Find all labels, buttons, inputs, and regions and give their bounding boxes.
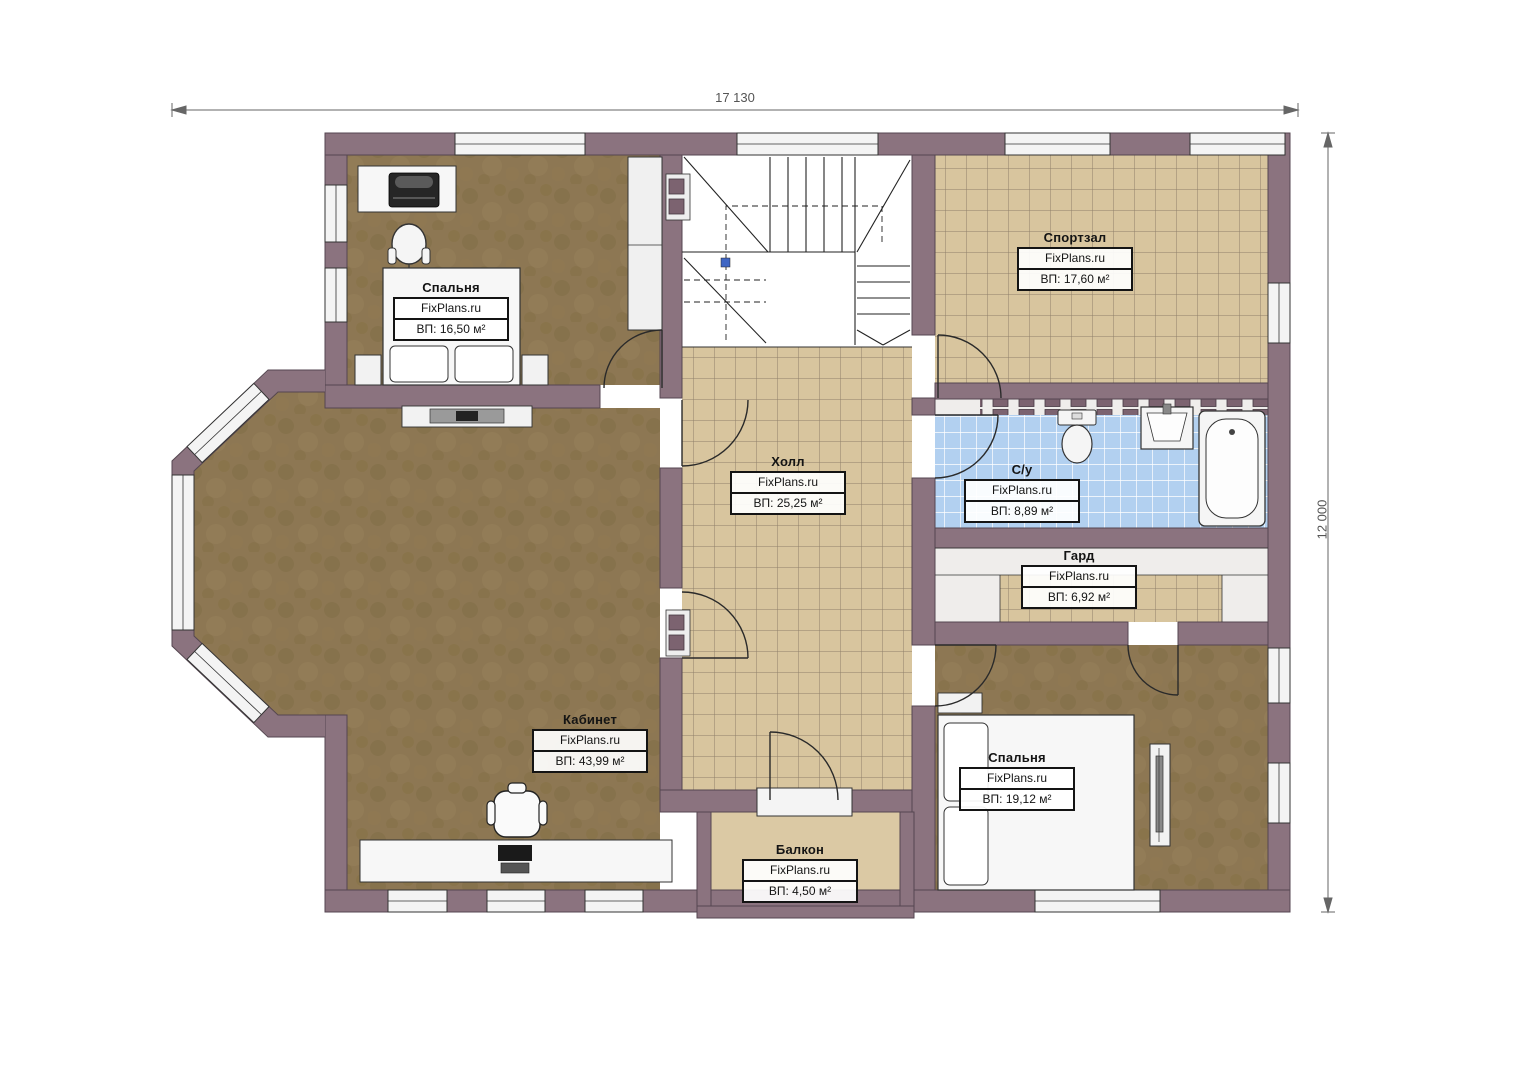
room-label-bedroom-2: Спальня FixPlans.ru ВП: 19,12 м² [959,750,1075,811]
room-info-box: FixPlans.ru ВП: 17,60 м² [1017,247,1133,291]
room-label-office: Кабинет FixPlans.ru ВП: 43,99 м² [532,712,648,773]
toilet-icon [1062,425,1092,463]
watermark-text: FixPlans.ru [961,769,1073,788]
room-title: Кабинет [532,712,648,727]
pillow [944,807,988,885]
room-info-box: FixPlans.ru ВП: 6,92 м² [1021,565,1137,609]
keyboard-icon [501,863,529,873]
room-label-bathroom: С/у FixPlans.ru ВП: 8,89 м² [964,462,1080,523]
wall-bathroom-wardrobe [935,528,1268,548]
nightstand [355,355,381,385]
wall-hall-left-2 [660,468,682,588]
room-label-gym: Спортзал FixPlans.ru ВП: 17,60 м² [1017,230,1133,291]
watermark-text: FixPlans.ru [395,299,507,318]
dimension-height-label: 12 000 [1315,480,1330,560]
room-title: Спортзал [1017,230,1133,245]
floor-plan-page: Спальня FixPlans.ru ВП: 16,50 м² Спортза… [0,0,1528,1080]
room-info-box: FixPlans.ru ВП: 43,99 м² [532,729,648,773]
hall-floor [682,347,912,790]
room-title: Гард [1021,548,1137,563]
wardrobe-shelf-right [1222,575,1268,622]
balcony-wall-left [697,812,711,918]
office-chair-icon [392,224,426,264]
nightstand [522,355,548,385]
wall-gym-bathroom [935,383,1268,399]
stairwell-floor [682,155,912,347]
wall-hall-right-3 [912,478,935,645]
room-info-box: FixPlans.ru ВП: 19,12 м² [959,767,1075,811]
wall-left-lower [325,715,347,890]
dimension-width-label: 17 130 [695,90,775,105]
wall-hall-right-2 [912,398,935,415]
room-label-balcony: Балкон FixPlans.ru ВП: 4,50 м² [742,842,858,903]
wall-wardrobe-bedroom2-1 [935,622,1128,645]
wall-hall-left-3 [660,658,682,790]
room-title: Спальня [959,750,1075,765]
room-title: Балкон [742,842,858,857]
pillow [455,346,513,382]
room-area: ВП: 8,89 м² [966,500,1078,521]
wall-wardrobe-bedroom2-2 [1178,622,1268,645]
wall-hall-right-1 [912,155,935,335]
room-area: ВП: 19,12 м² [961,788,1073,809]
room-title: Холл [730,454,846,469]
watermark-text: FixPlans.ru [744,861,856,880]
closet-bedroom1 [628,157,662,330]
watermark-text: FixPlans.ru [534,731,646,750]
watermark-text: FixPlans.ru [732,473,844,492]
watermark-text: FixPlans.ru [1019,249,1131,268]
room-label-bedroom-1: Спальня FixPlans.ru ВП: 16,50 м² [393,280,509,341]
room-area: ВП: 16,50 м² [395,318,507,339]
armchair-icon [494,791,540,837]
nightstand [938,693,982,713]
pillow [390,346,448,382]
watermark-text: FixPlans.ru [966,481,1078,500]
room-info-box: FixPlans.ru ВП: 4,50 м² [742,859,858,903]
room-area: ВП: 17,60 м² [1019,268,1131,289]
room-label-hall: Холл FixPlans.ru ВП: 25,25 м² [730,454,846,515]
balcony-wall-right [900,812,914,918]
room-info-box: FixPlans.ru ВП: 16,50 м² [393,297,509,341]
wardrobe-shelf-left [935,575,1000,622]
room-area: ВП: 43,99 м² [534,750,646,771]
wall-hall-right-4 [912,706,935,890]
room-title: С/у [964,462,1080,477]
room-area: ВП: 25,25 м² [732,492,844,513]
wall-bedroom1-office [325,385,600,408]
wall-hall-bottom-1 [660,790,762,812]
balcony-wall-bottom [697,906,914,918]
stair-marker [721,258,730,267]
room-info-box: FixPlans.ru ВП: 8,89 м² [964,479,1080,523]
watermark-text: FixPlans.ru [1023,567,1135,586]
room-title: Спальня [393,280,509,295]
room-info-box: FixPlans.ru ВП: 25,25 м² [730,471,846,515]
room-area: ВП: 4,50 м² [744,880,856,901]
room-label-wardrobe: Гард FixPlans.ru ВП: 6,92 м² [1021,548,1137,609]
floor-plan-drawing [0,0,1528,1080]
monitor-icon [498,845,532,861]
room-area: ВП: 6,92 м² [1023,586,1135,607]
